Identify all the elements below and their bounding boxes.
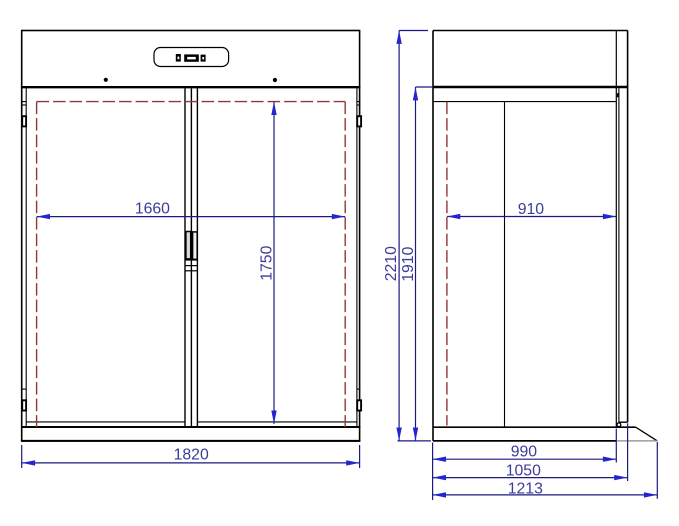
svg-text:910: 910 [518, 201, 545, 218]
svg-text:1660: 1660 [135, 200, 170, 217]
svg-text:1213: 1213 [508, 481, 543, 498]
svg-text:1910: 1910 [400, 246, 417, 281]
svg-text:2210: 2210 [383, 246, 400, 281]
svg-text:1750: 1750 [258, 245, 275, 280]
svg-text:1050: 1050 [506, 463, 541, 480]
svg-text:990: 990 [511, 444, 538, 461]
svg-text:1820: 1820 [174, 446, 209, 463]
